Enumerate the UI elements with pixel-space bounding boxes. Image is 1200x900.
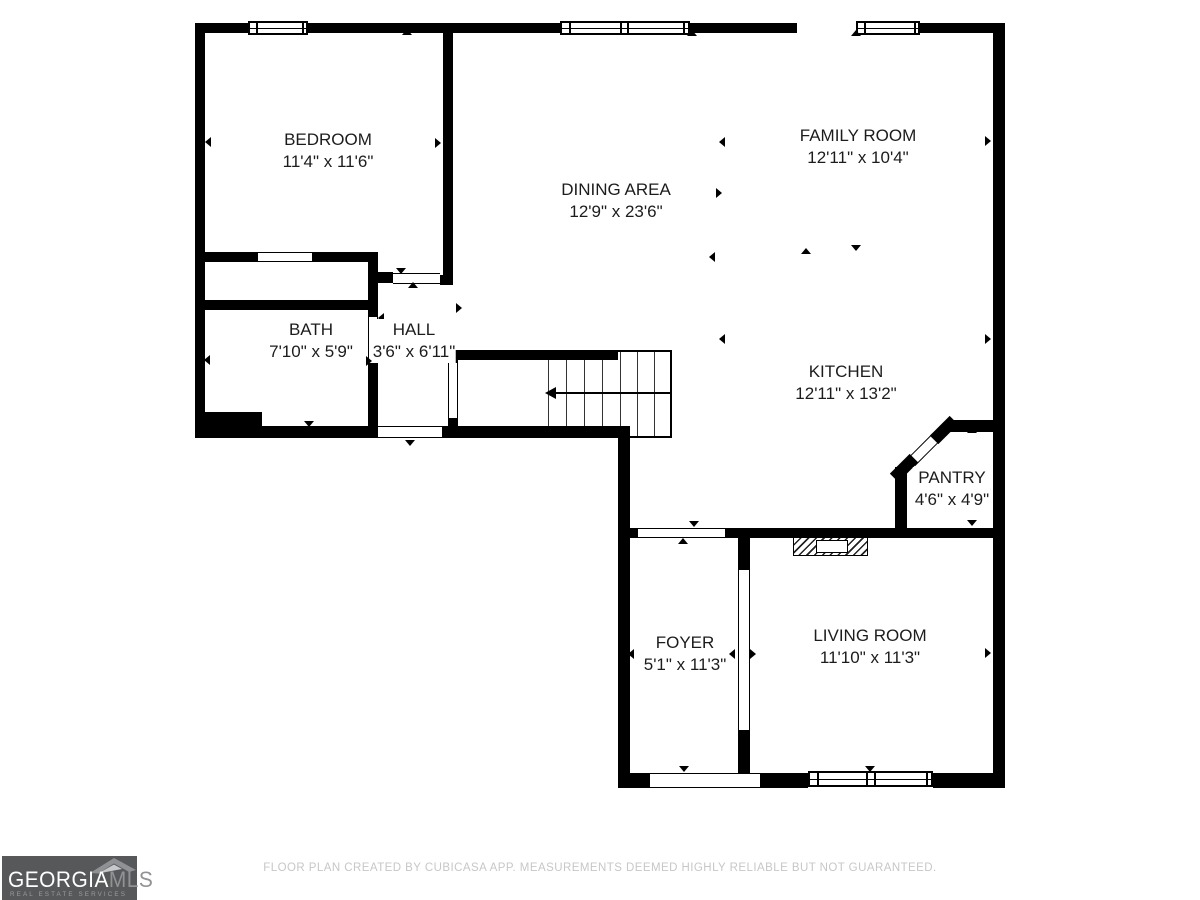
stair-tread xyxy=(566,352,567,436)
logo-brand-text: GEORGIAMLS xyxy=(8,867,153,893)
window-frame-line xyxy=(874,773,876,785)
direction-marker-icon xyxy=(716,188,722,198)
room-dimensions: 12'11" x 10'4" xyxy=(800,147,917,169)
direction-marker-icon xyxy=(204,355,210,365)
direction-marker-icon xyxy=(967,520,977,526)
direction-marker-icon xyxy=(709,252,715,262)
room-name: HALL xyxy=(373,319,456,341)
stair-tread xyxy=(602,352,603,436)
room-name: KITCHEN xyxy=(795,361,896,383)
wall-outer-top-2 xyxy=(308,23,560,33)
fireplace-firebox xyxy=(816,540,848,553)
wall-stairs-top xyxy=(448,350,618,360)
wall-hall-jamb-left xyxy=(378,272,393,283)
wall-foyer-left xyxy=(618,438,630,773)
window-frame-line xyxy=(256,23,258,33)
room-name: BATH xyxy=(269,319,353,341)
disclaimer-text: FLOOR PLAN CREATED BY CUBICASA APP. MEAS… xyxy=(0,862,1200,874)
window-frame-line xyxy=(569,23,571,33)
direction-marker-icon xyxy=(679,766,689,772)
direction-marker-icon xyxy=(687,30,697,36)
room-name: LIVING ROOM xyxy=(813,625,926,647)
floor-plan-canvas: BEDROOM 11'4" x 11'6" DINING AREA 12'9" … xyxy=(0,0,1200,900)
room-dimensions: 12'11" x 13'2" xyxy=(795,383,896,405)
room-name: BEDROOM xyxy=(283,129,374,151)
window-frame-line xyxy=(302,23,304,33)
room-label-pantry: PANTRY 4'6" x 4'9" xyxy=(913,467,991,511)
wall-stairs-bottom xyxy=(442,426,630,438)
wall-outer-left xyxy=(195,23,205,438)
room-name: DINING AREA xyxy=(561,179,671,201)
window-frame-line xyxy=(926,773,928,785)
direction-marker-icon xyxy=(729,649,735,659)
georgia-mls-logo: GEORGIAMLS REAL ESTATE SERVICES xyxy=(2,856,137,900)
room-dimensions: 4'6" x 4'9" xyxy=(915,489,989,511)
bedroom-window xyxy=(248,21,308,35)
direction-marker-icon xyxy=(396,268,406,274)
direction-marker-icon xyxy=(402,29,412,35)
window-frame-line xyxy=(683,23,685,33)
direction-marker-icon xyxy=(408,282,418,288)
window-frame-line xyxy=(914,23,916,33)
stair-tread xyxy=(620,352,621,436)
room-name: FOYER xyxy=(644,632,727,654)
stairs-direction-arrow-icon xyxy=(545,387,556,399)
direction-marker-icon xyxy=(750,649,756,659)
direction-marker-icon xyxy=(719,137,725,147)
room-dimensions: 3'6" x 6'11" xyxy=(373,341,456,363)
direction-marker-icon xyxy=(628,649,634,659)
direction-marker-icon xyxy=(851,30,861,36)
room-dimensions: 7'10" x 5'9" xyxy=(269,341,353,363)
wall-divider-jamb xyxy=(440,275,453,285)
wall-bedroom-dining-divider xyxy=(443,33,453,275)
room-label-family-room: FAMILY ROOM 12'11" x 10'4" xyxy=(798,125,919,169)
direction-marker-icon xyxy=(304,303,314,309)
room-label-foyer: FOYER 5'1" x 11'3" xyxy=(642,632,729,676)
wall-foyer-bottom-2 xyxy=(760,773,808,788)
direction-marker-icon xyxy=(865,766,875,772)
room-label-dining-area: DINING AREA 12'9" x 23'6" xyxy=(559,179,673,223)
direction-marker-icon xyxy=(435,138,441,148)
room-dimensions: 11'10" x 11'3" xyxy=(813,647,926,669)
logo-brand-secondary: MLS xyxy=(109,867,153,892)
wall-bath-hall-divider-lower xyxy=(368,363,378,438)
wall-bedroom-bottom-1 xyxy=(195,252,258,262)
direction-marker-icon xyxy=(456,303,462,313)
foyer-kitchen-door-opening xyxy=(638,528,725,538)
hall-exterior-door-opening xyxy=(378,426,442,438)
room-label-hall: HALL 3'6" x 6'11" xyxy=(371,319,458,363)
wall-outer-right xyxy=(993,23,1005,788)
logo-brand-primary: GEORGIA xyxy=(8,867,109,892)
stair-tread xyxy=(584,352,585,436)
direction-marker-icon xyxy=(205,137,211,147)
stair-tread xyxy=(654,352,655,436)
foyer-entry-door-opening xyxy=(650,773,760,788)
direction-marker-icon xyxy=(985,334,991,344)
room-label-bedroom: BEDROOM 11'4" x 11'6" xyxy=(281,129,376,173)
room-label-bath: BATH 7'10" x 5'9" xyxy=(267,319,355,363)
window-pane-line xyxy=(562,28,688,29)
window-pane-line xyxy=(858,28,918,29)
direction-marker-icon xyxy=(304,421,314,427)
room-label-living-room: LIVING ROOM 11'10" x 11'3" xyxy=(811,625,928,669)
direction-marker-icon xyxy=(678,538,688,544)
wall-foyer-top-seg xyxy=(618,528,638,538)
window-pane-line xyxy=(250,28,306,29)
room-name: FAMILY ROOM xyxy=(800,125,917,147)
stairs-direction-line xyxy=(556,392,672,394)
room-label-kitchen: KITCHEN 12'11" x 13'2" xyxy=(793,361,898,405)
room-dimensions: 5'1" x 11'3" xyxy=(644,654,727,676)
wall-kitchen-bottom-right xyxy=(950,420,1005,432)
window-frame-line xyxy=(864,23,866,33)
wall-bath-top xyxy=(195,300,368,310)
direction-marker-icon xyxy=(689,521,699,527)
wall-hall-stub-bottom xyxy=(448,418,458,438)
hall-stairs-door-opening xyxy=(448,363,458,418)
livingroom-window xyxy=(808,771,933,787)
wall-divider-bottom-stub xyxy=(738,730,750,773)
foyer-livingroom-opening xyxy=(738,570,750,730)
bath-corner-block xyxy=(205,412,262,428)
wall-divider-top-stub xyxy=(738,538,750,570)
direction-marker-icon xyxy=(967,427,977,433)
window-frame-line xyxy=(817,773,819,785)
familyroom-window xyxy=(856,21,920,35)
direction-marker-icon xyxy=(851,245,861,251)
direction-marker-icon xyxy=(985,648,991,658)
room-dimensions: 11'4" x 11'6" xyxy=(283,151,374,173)
window-frame-line xyxy=(627,23,629,33)
direction-marker-icon xyxy=(985,136,991,146)
wall-foyer-bottom-1 xyxy=(618,773,650,788)
direction-marker-icon xyxy=(405,440,415,446)
window-frame-line xyxy=(866,773,868,785)
window-frame-line xyxy=(620,23,622,33)
direction-marker-icon xyxy=(719,334,725,344)
wall-livingroom-bottom xyxy=(933,773,1005,788)
window-pane-line xyxy=(810,779,931,780)
closet-opening xyxy=(258,252,312,262)
room-name: PANTRY xyxy=(915,467,989,489)
wall-closet-right xyxy=(368,252,378,317)
direction-marker-icon xyxy=(801,248,811,254)
wall-outer-top-3 xyxy=(690,23,797,33)
logo-tagline: REAL ESTATE SERVICES xyxy=(10,891,127,898)
room-dimensions: 12'9" x 23'6" xyxy=(561,201,671,223)
stair-tread xyxy=(637,352,638,436)
dining-double-window xyxy=(560,21,690,35)
stairs-extension xyxy=(618,350,672,438)
